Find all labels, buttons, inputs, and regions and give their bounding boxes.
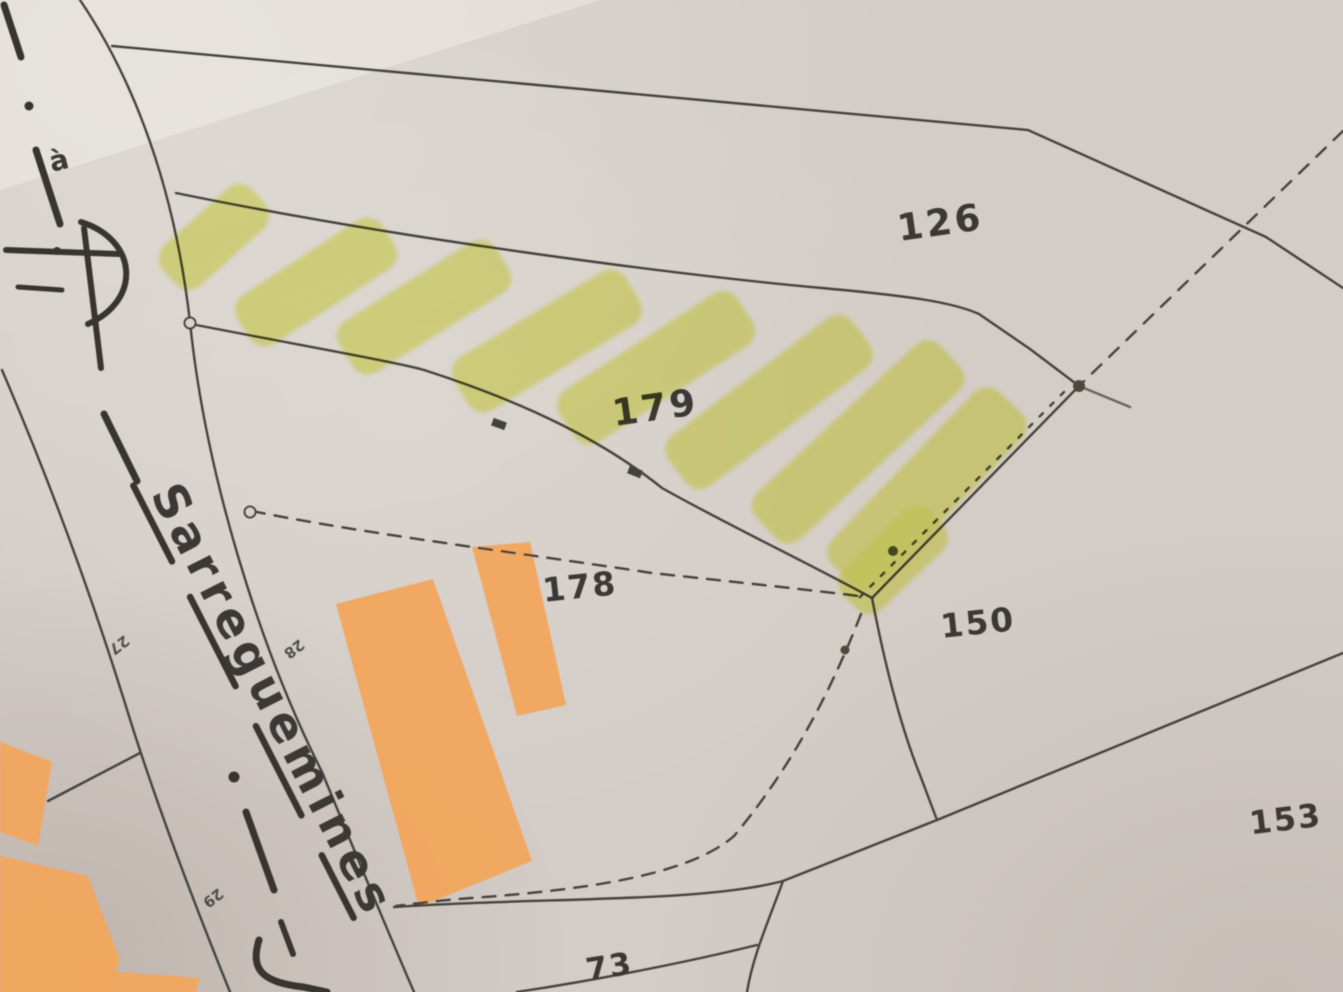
junction-symbol-node	[53, 247, 61, 255]
shadow-bottom-right	[0, 0, 1343, 992]
cadastral-map-photo: 126 179 178 150 153 73 Sarreguemines à 2…	[0, 0, 1343, 992]
boundary-node-circle	[185, 318, 196, 329]
junction-symbol-bar	[6, 250, 119, 254]
centerline-dot	[229, 772, 240, 783]
boundary-node-circle	[245, 507, 256, 518]
parcel-label-150: 150	[939, 599, 1018, 646]
parcel-label-178: 178	[541, 563, 620, 610]
lighting-overlay	[0, 0, 1343, 992]
junction-symbol-bar-short	[18, 287, 62, 290]
boundary-point-dot	[841, 646, 850, 655]
parcel-label-73: 73	[583, 946, 635, 989]
boundary-point-dot	[1073, 380, 1085, 392]
centerline-dot	[25, 102, 34, 111]
cadastral-map: 126 179 178 150 153 73 Sarreguemines à 2…	[0, 0, 1343, 992]
